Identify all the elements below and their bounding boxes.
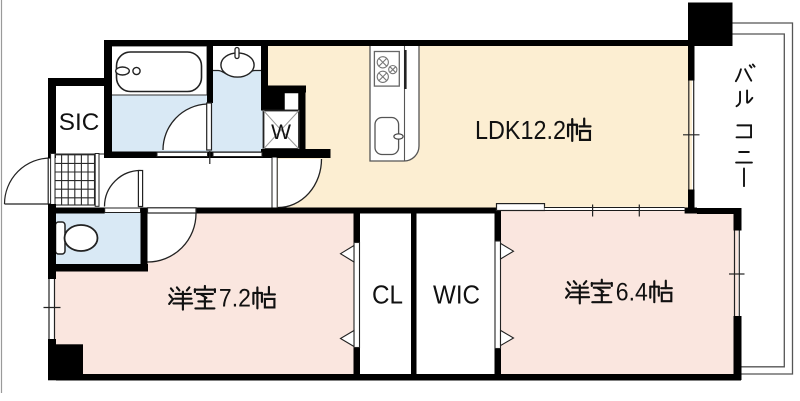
svg-text:6.4: 6.4: [616, 278, 648, 306]
svg-text:CL: CL: [372, 280, 403, 310]
svg-text:W: W: [271, 121, 291, 144]
svg-text:SIC: SIC: [59, 109, 100, 136]
svg-text:7.2: 7.2: [219, 285, 251, 313]
svg-text:WIC: WIC: [433, 280, 480, 310]
svg-text:LDK12.2: LDK12.2: [475, 115, 566, 145]
